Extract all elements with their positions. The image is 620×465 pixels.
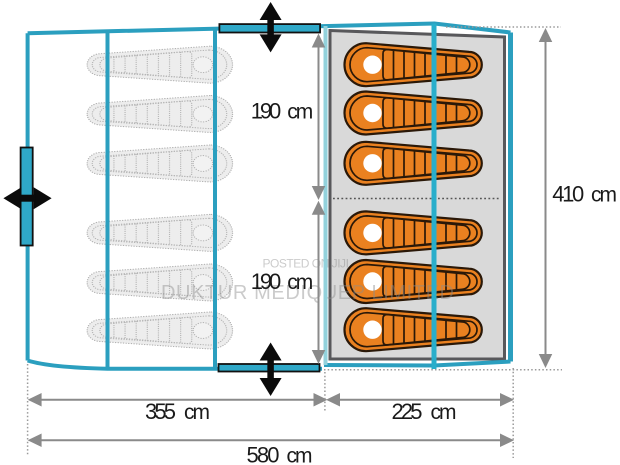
svg-text:190: 190 [251, 98, 282, 123]
svg-text:580: 580 [247, 443, 280, 465]
svg-text:cm: cm [431, 401, 457, 424]
svg-text:cm: cm [287, 445, 313, 465]
svg-text:cm: cm [287, 100, 313, 123]
svg-text:225: 225 [392, 399, 423, 424]
svg-text:410: 410 [552, 182, 584, 207]
svg-text:355: 355 [145, 399, 176, 424]
svg-text:cm: cm [184, 401, 210, 424]
svg-text:190: 190 [251, 269, 282, 294]
svg-text:cm: cm [591, 184, 617, 207]
svg-text:cm: cm [287, 271, 313, 294]
